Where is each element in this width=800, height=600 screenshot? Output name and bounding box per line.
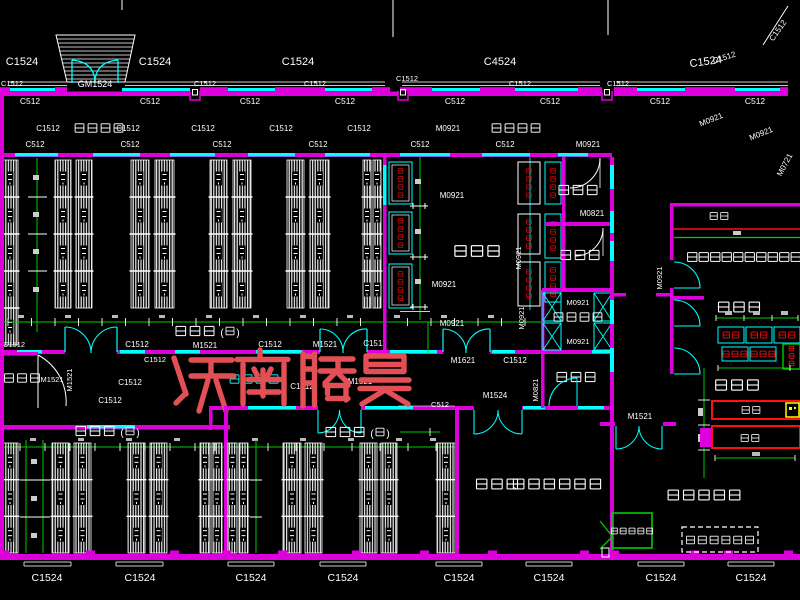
svg-text:C1512: C1512	[1, 79, 23, 88]
svg-text:): )	[386, 429, 389, 440]
svg-text:M0921: M0921	[440, 191, 465, 200]
svg-text:): )	[236, 328, 239, 339]
svg-text:C512: C512	[20, 96, 41, 106]
svg-text:C1512: C1512	[503, 356, 527, 365]
svg-text:M0921: M0921	[655, 267, 664, 290]
svg-text:M1521: M1521	[628, 412, 653, 421]
svg-text:C512: C512	[745, 96, 766, 106]
svg-text:C1524: C1524	[282, 56, 314, 68]
svg-text:M1521: M1521	[193, 341, 218, 350]
svg-text:C512: C512	[25, 140, 45, 149]
svg-text:C1512: C1512	[3, 340, 25, 349]
svg-text:M0921: M0921	[440, 319, 465, 328]
svg-text:C512: C512	[120, 140, 140, 149]
svg-text:M0921: M0921	[436, 124, 461, 133]
svg-text:M0821: M0821	[580, 209, 605, 218]
svg-text:M1524: M1524	[483, 391, 508, 400]
svg-text:M0921: M0921	[514, 247, 523, 270]
svg-text:C1512: C1512	[269, 124, 293, 133]
svg-text:M0921: M0921	[567, 337, 590, 346]
svg-text:、: 、	[513, 481, 522, 491]
svg-text:C1512: C1512	[304, 79, 326, 88]
svg-text:C512: C512	[540, 96, 561, 106]
svg-text:C1512: C1512	[144, 355, 166, 364]
svg-text:M0821: M0821	[531, 379, 540, 402]
svg-text:C512: C512	[495, 140, 515, 149]
svg-text:C1524: C1524	[6, 56, 38, 68]
svg-text:C1512: C1512	[607, 79, 629, 88]
svg-text:M0921: M0921	[432, 280, 457, 289]
svg-text:C1512: C1512	[347, 124, 371, 133]
svg-text:): )	[136, 428, 139, 439]
svg-text:M1521: M1521	[65, 369, 74, 392]
svg-text:M0921: M0921	[576, 140, 601, 149]
svg-text:C512: C512	[212, 140, 232, 149]
svg-text:C1512: C1512	[125, 340, 149, 349]
svg-text:C1524: C1524	[125, 572, 156, 584]
svg-text:C1512: C1512	[116, 124, 140, 133]
svg-text:C512: C512	[240, 96, 261, 106]
svg-text:C512: C512	[445, 96, 466, 106]
svg-text:C1524: C1524	[646, 572, 677, 584]
svg-text:C512: C512	[140, 96, 161, 106]
svg-text:M0921: M0921	[567, 298, 590, 307]
svg-text:C1512: C1512	[36, 124, 60, 133]
svg-text:C1512: C1512	[396, 74, 418, 83]
svg-text:C512: C512	[431, 400, 449, 409]
svg-text:C512: C512	[410, 140, 430, 149]
svg-text:M1621: M1621	[451, 356, 476, 365]
svg-text:C1512: C1512	[258, 340, 282, 349]
svg-text:C1524: C1524	[139, 56, 171, 68]
svg-text:C4524: C4524	[484, 56, 516, 68]
svg-text:C512: C512	[650, 96, 671, 106]
svg-text:C1512: C1512	[98, 396, 122, 405]
svg-text:M1521: M1521	[313, 340, 338, 349]
svg-text:M0921: M0921	[517, 307, 526, 330]
svg-text:C1524: C1524	[236, 572, 267, 584]
svg-text:C1524: C1524	[534, 572, 565, 584]
svg-text:GM1524: GM1524	[78, 79, 113, 89]
svg-text:C512: C512	[335, 96, 356, 106]
svg-text:C1524: C1524	[736, 572, 767, 584]
svg-text:C1524: C1524	[444, 572, 475, 584]
svg-text:C1512: C1512	[509, 79, 531, 88]
svg-text:C512: C512	[308, 140, 328, 149]
svg-text:C1524: C1524	[32, 572, 63, 584]
svg-text:C1512: C1512	[118, 378, 142, 387]
svg-text:C1512: C1512	[191, 124, 215, 133]
svg-text:C1524: C1524	[328, 572, 359, 584]
svg-text:C1512: C1512	[194, 79, 216, 88]
